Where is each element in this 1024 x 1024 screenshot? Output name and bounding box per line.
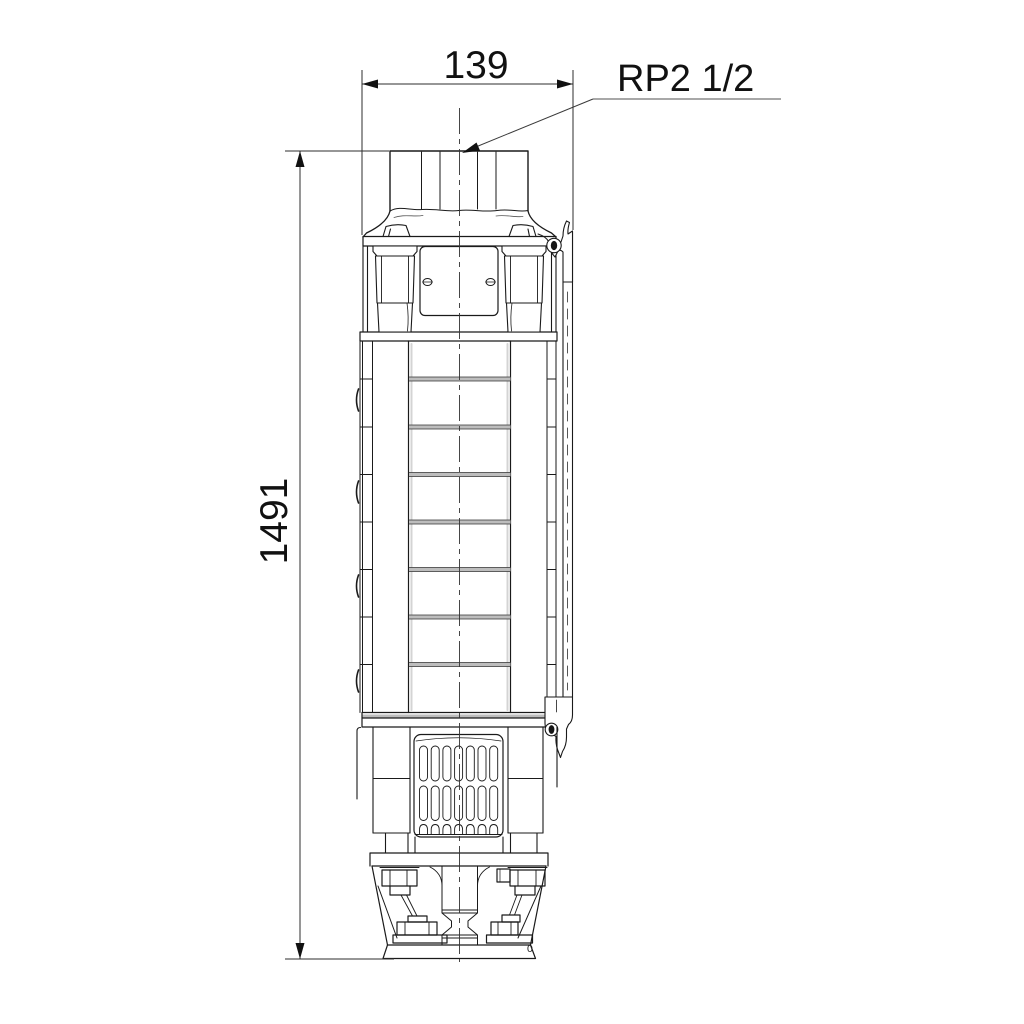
strap-clamp-left bbox=[373, 246, 417, 332]
height-dimension-label: 1491 bbox=[253, 478, 296, 565]
connection-callout: RP2 1/2 bbox=[462, 58, 781, 153]
pump-drawing: 0 bbox=[357, 151, 573, 959]
arrowhead-right-icon bbox=[557, 80, 573, 89]
strap-right bbox=[547, 341, 556, 713]
dimension-width: 139 bbox=[362, 44, 573, 235]
base-mark-label: 0 bbox=[527, 943, 533, 955]
motor-base: 0 bbox=[370, 853, 548, 959]
strap-clamp-right bbox=[502, 246, 546, 332]
leader-line bbox=[466, 99, 593, 151]
arrowhead-left-icon bbox=[362, 80, 378, 89]
connection-label: RP2 1/2 bbox=[617, 58, 754, 100]
arrowhead-up-icon bbox=[296, 151, 305, 167]
width-dimension-label: 139 bbox=[443, 44, 508, 87]
cable-guard bbox=[538, 221, 573, 758]
strap-left bbox=[357, 341, 373, 713]
suction-interconnector bbox=[357, 727, 557, 853]
nameplate bbox=[420, 247, 498, 316]
technical-drawing-page: 0 139 1491 RP2 1/2 bbox=[0, 0, 1024, 1024]
pump-dimensional-drawing: 0 139 1491 RP2 1/2 bbox=[0, 0, 1024, 1024]
cable-entry bbox=[497, 869, 510, 882]
arrowhead-down-icon bbox=[296, 943, 305, 959]
